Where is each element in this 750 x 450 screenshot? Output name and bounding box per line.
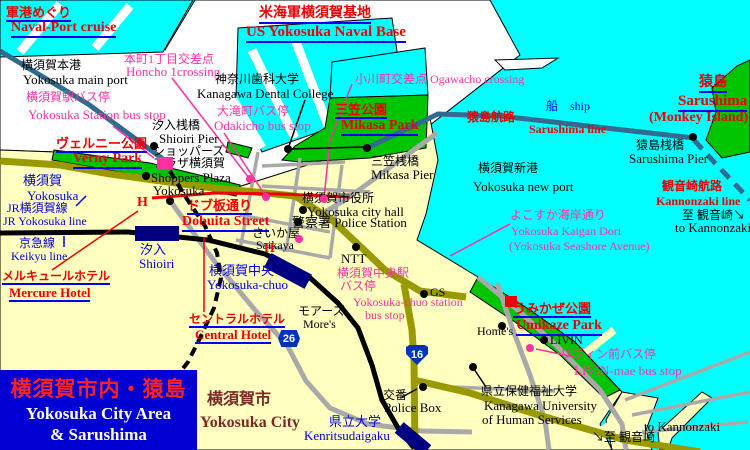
mores-ja: モアーズ	[298, 305, 345, 318]
to-kannonzaki-right-en: to Kannonzaki	[675, 221, 750, 235]
mercure-hotel-h: H	[137, 195, 148, 211]
dobuita-ja: ドブ板通り	[187, 199, 252, 215]
city-area-en: Yokosuka City	[200, 415, 300, 432]
yokosuka-city-map: 横須賀市内・猿島 Yokosuka City Area & Sarushima …	[0, 0, 750, 450]
jr-line-ja: JR横須賀線	[7, 202, 68, 215]
koban-en: Police Box	[384, 401, 441, 415]
verny-poi-dot	[166, 197, 174, 205]
shioiri-sta-en: Shioiri	[139, 257, 174, 271]
honcho-crossing-dot	[246, 175, 254, 183]
honcho-crossing-en: Honcho 1crossing	[126, 65, 220, 79]
map-title-box: 横須賀市内・猿島 Yokosuka City Area & Sarushima	[0, 370, 197, 450]
mainport-ja: 横須賀本港	[21, 59, 81, 72]
to-kannonzaki-bottom-en: to Kannonzaki	[644, 420, 720, 434]
central-hotel-h: H	[264, 241, 275, 257]
ntt-label: NTT	[341, 252, 366, 266]
chuo-sta-en: Yokosuka-chuo	[207, 278, 288, 292]
kannonzaki-route-ja: 観音崎航路	[662, 180, 722, 193]
kaigan-dori-line1: よこすか海岸通り	[510, 209, 606, 222]
us-base-ja: 米海軍横須賀基地	[259, 7, 371, 24]
umikaze-marker	[505, 296, 517, 307]
keikyu-line-ja: 京急線	[19, 237, 55, 250]
gs-dot	[420, 290, 428, 298]
monkey-island: (Monkey Island)	[649, 111, 748, 126]
odakicho-stop-dot	[262, 193, 270, 201]
city-area-ja: 横須賀市	[207, 392, 271, 409]
homes-label: Home's	[477, 325, 513, 338]
umikaze-park-ja: うみかぜ公園	[513, 302, 591, 318]
yokosuka-sta-ja: 横須賀	[23, 174, 62, 188]
sarushima-ja: 猿島	[699, 76, 727, 93]
sarushima-route-en: Sarushima line	[529, 123, 606, 136]
chuo-sta-ja: 横須賀中央	[209, 264, 274, 278]
odakicho-bus-ja: 大滝町バス停	[217, 105, 289, 118]
us-base-en: US Yokosuka Naval Base	[246, 25, 406, 43]
newport-ja: 横須賀新港	[478, 162, 538, 175]
mikasa-pier-dot	[363, 144, 371, 152]
livin-stop-dot	[526, 344, 534, 352]
kaigan-dori-line2: Yokosuka Kaigan Dori	[511, 225, 621, 238]
university-line2: Kanagawa University	[484, 399, 597, 413]
livin-bus-ja: リヴィン前バス停	[560, 348, 656, 361]
naval-cruise-en: Naval-Port cruise	[11, 21, 116, 38]
ntt-dot	[352, 243, 360, 251]
shioiri-station-box	[135, 226, 179, 241]
cityhall-ja: 横須賀市役所	[302, 192, 374, 205]
ogawacho-crossing-dot	[320, 195, 328, 203]
map-title-ja: 横須賀市内・猿島	[0, 373, 197, 403]
mercure-hotel-en: Mercure Hotel	[9, 286, 90, 302]
chuo-bus-line3: Yokosuka-chuo station	[353, 296, 463, 309]
cityhall-dot	[299, 206, 307, 214]
ogawacho-crossing: 小川町交差点 Ogawacho crossing	[355, 73, 524, 86]
odakicho-bus-en: Odakicho bus stop	[214, 119, 311, 133]
gs-label: GS	[430, 286, 445, 299]
keikyu-line-en: Keikyu line	[11, 250, 67, 263]
police-station-dot	[294, 218, 302, 226]
chuo-bus-line1: 横須賀中央駅	[337, 267, 409, 280]
chuo-bus-line2: バス停	[340, 280, 376, 293]
central-hotel-en: Central Hotel	[195, 328, 271, 344]
dental-college-en: Kanagawa Dental College	[197, 87, 333, 101]
central-hotel-ja: セントラルホテル	[189, 313, 285, 328]
mores-en: More's	[303, 318, 336, 331]
kenritsu-sta-ja: 県立大学	[329, 415, 381, 429]
sarushima-pier-dot	[689, 133, 697, 141]
yokosuka-station-bus-ja: 横須賀駅バス停	[26, 91, 110, 104]
saikaya-en: Saikaya	[256, 239, 294, 252]
sarushima-pier-en: Sarushima Pier	[629, 152, 708, 166]
homes-dot	[498, 322, 506, 330]
mainport-en: Yokosuka main port	[23, 73, 128, 87]
route-26-badge: 26	[278, 330, 300, 347]
kenritsu-sta-en: Kenritsudaigaku	[304, 429, 390, 443]
livin-label: LIVIN	[550, 334, 583, 347]
yokosuka-station-marker	[157, 157, 173, 169]
ship-label: 船 ship	[546, 100, 590, 113]
chuo-stop-dot	[295, 235, 303, 243]
shioiri-pier-dot	[150, 142, 158, 150]
dental-college-ja: 神奈川歯科大学	[215, 73, 299, 86]
university-line3: of Human Services	[482, 413, 582, 427]
chuo-bus-line4: bus stop	[365, 309, 405, 322]
livin-bus-en: LIVIN-mae bus stop	[574, 364, 682, 378]
sarushima-route-ja: 猿島航路	[467, 111, 515, 124]
police-station: 警察署 Police Station	[292, 216, 407, 230]
yokosuka-station-bus-en: Yokosuka Station bus stop	[28, 108, 166, 122]
sarushima-pier-ja: 猿島桟橋	[636, 139, 684, 152]
shoppers-plaza-dot	[142, 172, 150, 180]
map-title-en-line1: Yokosuka City Area	[0, 403, 197, 424]
mercure-hotel-ja: メルキュールホテル	[2, 270, 110, 285]
livin-dot	[540, 336, 548, 344]
dental-college-dot	[284, 145, 292, 153]
shioiri-sta-ja: 汐入	[140, 243, 166, 257]
verny-park-en: Verny Park	[73, 152, 142, 169]
university-dot	[469, 363, 477, 371]
newport-en: Yokosuka new port	[473, 180, 574, 194]
kannonzaki-route-en: Kannonzaki line	[656, 195, 740, 208]
university-line1: 県立保健福祉大学	[481, 385, 577, 398]
kaigan-dori-line3: (Yokosuka Seashore Avenue)	[509, 240, 650, 253]
koban-dot	[419, 383, 427, 391]
mikasa-park-ja: 三笠公園	[335, 103, 387, 119]
mikasa-park-en: Mikasa Park	[341, 119, 418, 136]
shioiri-pier-ja: 汐入桟橋	[152, 119, 200, 132]
jr-line-en: JR Yokosuka line	[3, 215, 87, 228]
mikasa-pier-en: Mikasa Pier	[371, 168, 433, 182]
map-title-en-line2: & Sarushima	[0, 424, 197, 445]
mikasa-pier-ja: 三笠桟橋	[371, 155, 419, 168]
shoppers-line4: Yokosuka	[153, 184, 204, 198]
